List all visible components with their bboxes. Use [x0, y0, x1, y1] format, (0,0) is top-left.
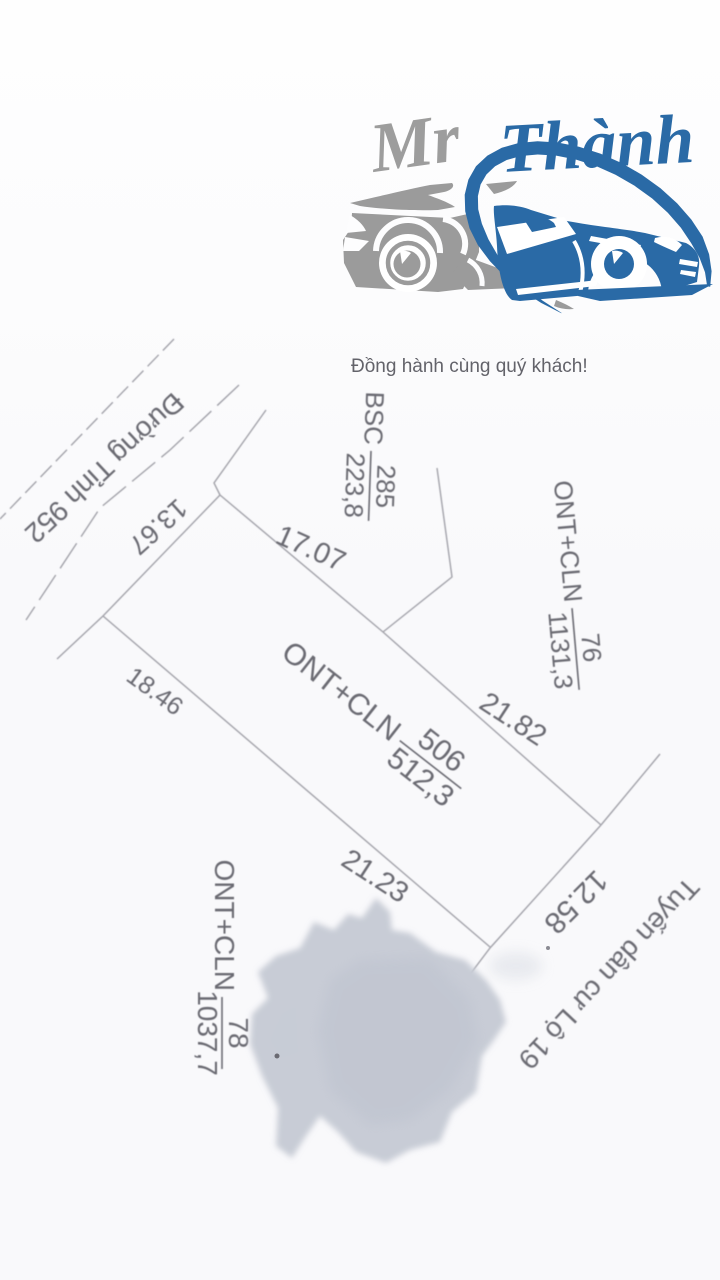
- svg-text:1037,7: 1037,7: [192, 990, 223, 1076]
- svg-text:76: 76: [575, 632, 607, 663]
- svg-text:ONT+CLN: ONT+CLN: [209, 860, 240, 991]
- svg-text:78: 78: [223, 1017, 254, 1048]
- svg-text:Mr: Mr: [365, 99, 466, 188]
- svg-text:285: 285: [370, 464, 401, 508]
- svg-text:Đồng hành cùng quý khách!: Đồng hành cùng quý khách!: [351, 356, 588, 377]
- svg-text:BSC: BSC: [358, 391, 390, 445]
- svg-text:223,8: 223,8: [339, 452, 371, 518]
